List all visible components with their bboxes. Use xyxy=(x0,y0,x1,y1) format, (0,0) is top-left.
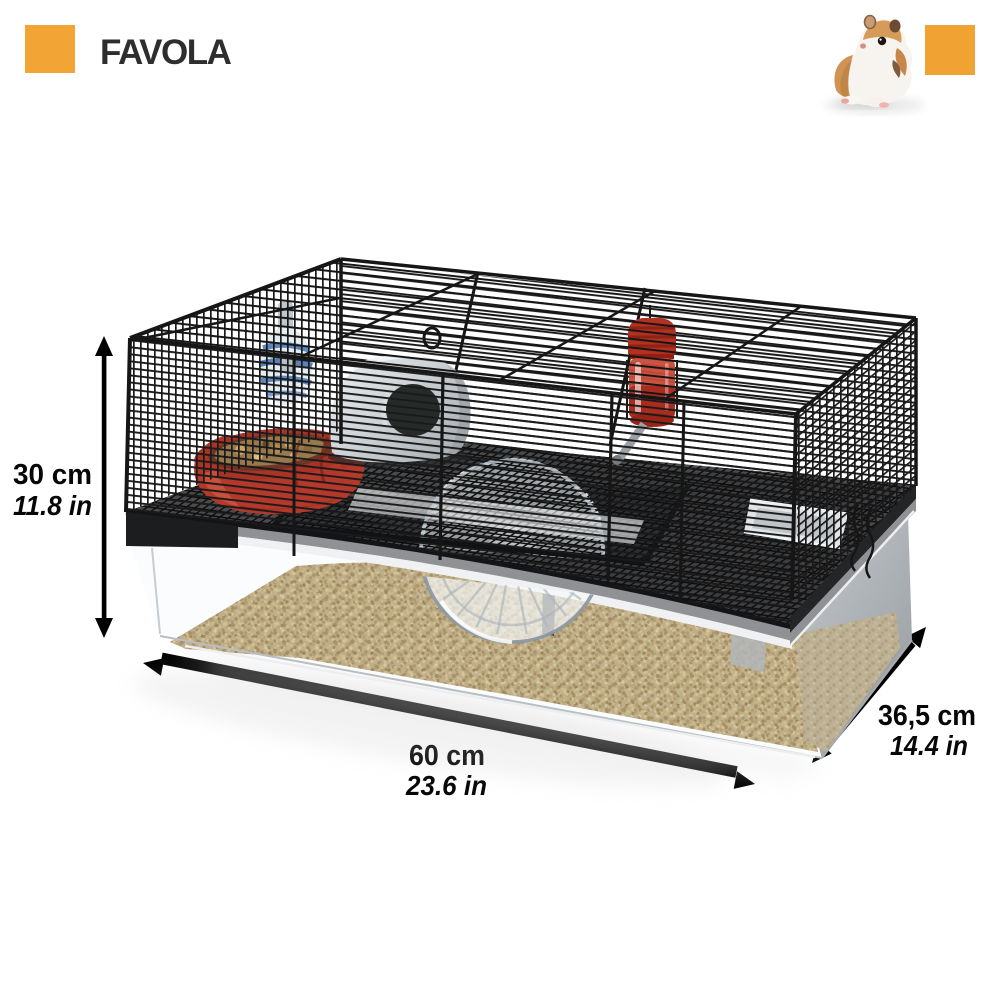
svg-text:36,5 cm: 36,5 cm xyxy=(878,700,976,732)
svg-text:23.6 in: 23.6 in xyxy=(405,770,487,801)
svg-text:14.4 in: 14.4 in xyxy=(890,730,968,761)
svg-text:FAVOLA: FAVOLA xyxy=(100,33,232,72)
svg-text:11.8 in: 11.8 in xyxy=(13,490,92,521)
svg-text:30 cm: 30 cm xyxy=(13,459,92,491)
